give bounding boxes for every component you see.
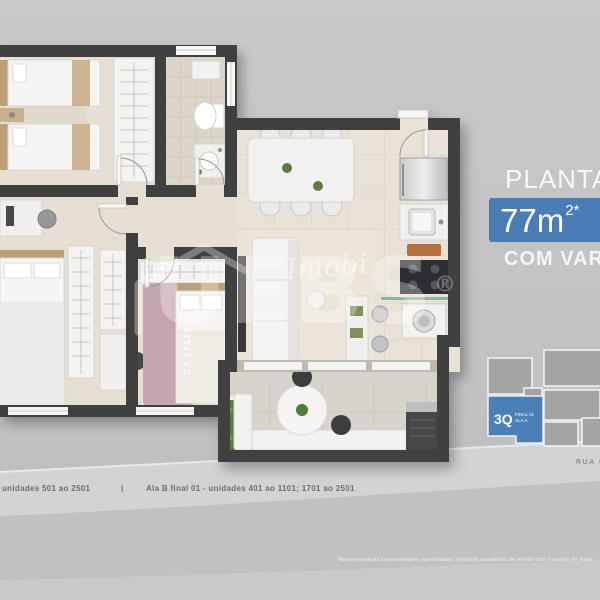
floorplan-marketing-image: 3Q FINAL 01 ALA A PLANTA 77m2* COM VAR R… bbox=[0, 0, 600, 600]
desk bbox=[100, 334, 126, 390]
wardrobe bbox=[100, 250, 126, 330]
dining-set bbox=[248, 126, 354, 216]
chair bbox=[331, 415, 351, 435]
toilet-icon bbox=[194, 102, 224, 130]
entry-door-leaf bbox=[398, 110, 428, 118]
shelf bbox=[192, 61, 220, 79]
wardrobe bbox=[68, 246, 94, 378]
area-superscript: 2* bbox=[565, 202, 579, 219]
balcony-sliding-doors bbox=[237, 360, 448, 372]
fine-print-disclaimer: *Áreas privativas com metragens aproxima… bbox=[337, 557, 595, 563]
keyplan-unit-wing: ALA A bbox=[515, 418, 528, 423]
footer-units-left: unidades 501 ao 2501 bbox=[2, 484, 90, 493]
area-value: 77m bbox=[500, 204, 564, 237]
footer-units-right: Ala B final 01 - unidades 401 ao 1101; 1… bbox=[146, 484, 355, 493]
background-swoosh-bands bbox=[0, 441, 600, 600]
table-plant bbox=[296, 404, 308, 416]
single-bed bbox=[0, 124, 100, 170]
plan-title: PLANTA bbox=[505, 164, 600, 195]
plan-subtitle: COM VAR bbox=[504, 248, 600, 271]
street-label: RUA C bbox=[576, 459, 600, 466]
script-watermark: Imobi bbox=[285, 247, 368, 286]
keyplan: 3Q FINAL 01 ALA A bbox=[488, 350, 600, 446]
grill-icon bbox=[406, 402, 438, 452]
footer-divider: | bbox=[121, 484, 124, 493]
area-badge: 77m2* bbox=[489, 198, 600, 242]
bench bbox=[234, 394, 252, 450]
double-bed bbox=[0, 250, 64, 408]
bedroom1-furniture bbox=[0, 58, 154, 182]
kitchen-sink bbox=[400, 204, 448, 240]
registered-mark: ® bbox=[434, 272, 458, 297]
keyplan-unit-final: FINAL 01 bbox=[515, 412, 535, 417]
single-bed bbox=[0, 60, 100, 106]
creci-number: CJ 17870 bbox=[182, 326, 192, 375]
fridge-icon bbox=[400, 158, 448, 200]
keyplan-unit-label: 3Q bbox=[494, 411, 513, 427]
